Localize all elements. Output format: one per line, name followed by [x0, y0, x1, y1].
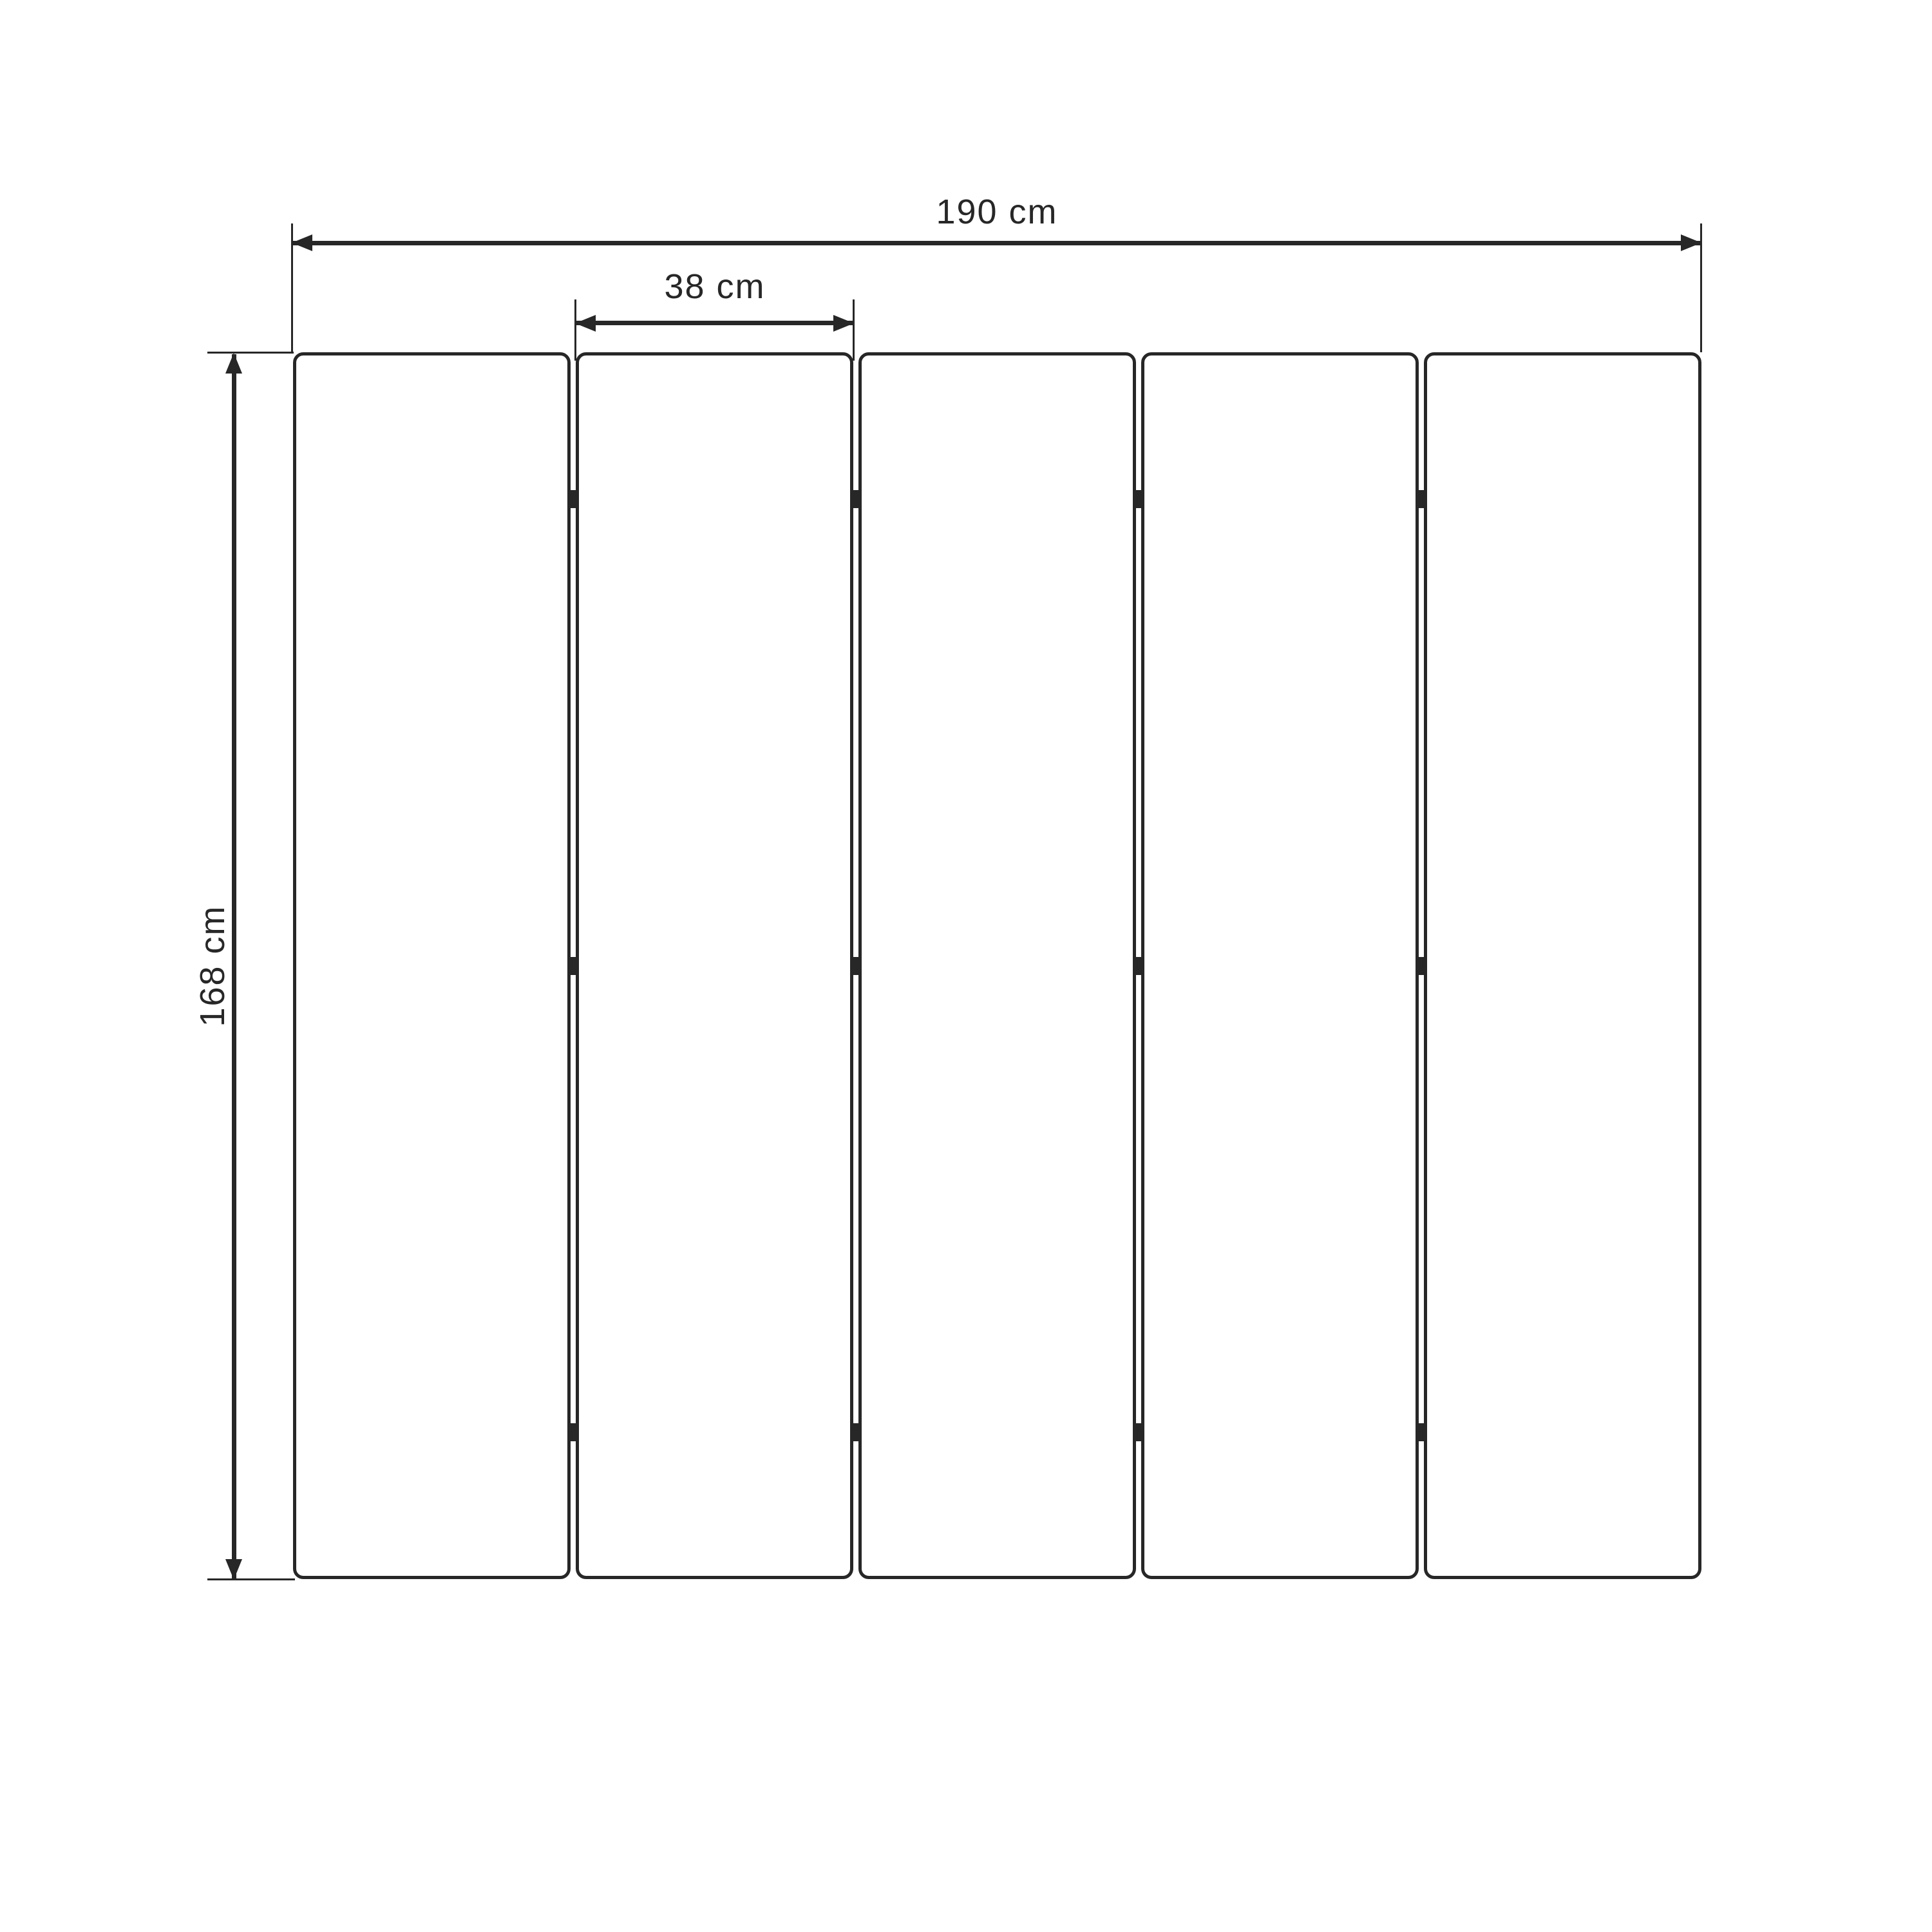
hinge-joint1-1 [569, 490, 578, 508]
hinge-joint2-1 [852, 490, 860, 508]
screen-panel-3 [858, 352, 1136, 1579]
dimension-drawing-canvas: 190 cm 38 cm 168 cm [0, 0, 1932, 1932]
hinge-joint3-1 [1135, 490, 1143, 508]
arrowhead-down-icon [225, 1559, 242, 1580]
screen-panel-2 [576, 352, 853, 1579]
hinge-joint1-2 [569, 957, 578, 975]
screen-panel-4 [1141, 352, 1419, 1579]
extension-line-left [574, 299, 576, 361]
screen-panel-1 [293, 352, 571, 1579]
arrowhead-left-icon [292, 234, 312, 251]
arrowhead-left-icon [575, 315, 596, 332]
height-dimension-label: 168 cm [193, 905, 232, 1027]
total-width-dimension-label: 190 cm [936, 192, 1057, 232]
extension-line-bottom [207, 1578, 295, 1580]
hinge-joint2-2 [852, 957, 860, 975]
hinge-joint2-3 [852, 1423, 860, 1441]
panel-width-dimension-label: 38 cm [664, 267, 765, 307]
extension-line-top [207, 352, 294, 354]
extension-line-right [853, 299, 855, 361]
extension-line-left [291, 223, 293, 352]
hinge-joint3-2 [1135, 957, 1143, 975]
hinge-joint3-3 [1135, 1423, 1143, 1441]
hinge-joint4-1 [1417, 490, 1426, 508]
extension-line-right [1700, 223, 1702, 352]
hinge-joint4-3 [1417, 1423, 1426, 1441]
panel-width-dimension-line [575, 321, 854, 325]
screen-panel-5 [1424, 352, 1701, 1579]
hinge-joint4-2 [1417, 957, 1426, 975]
hinge-joint1-3 [569, 1423, 578, 1441]
height-dimension-line [232, 354, 236, 1580]
arrowhead-right-icon [1681, 234, 1701, 251]
arrowhead-up-icon [225, 353, 242, 374]
total-width-dimension-line [292, 241, 1701, 245]
arrowhead-right-icon [833, 315, 854, 332]
